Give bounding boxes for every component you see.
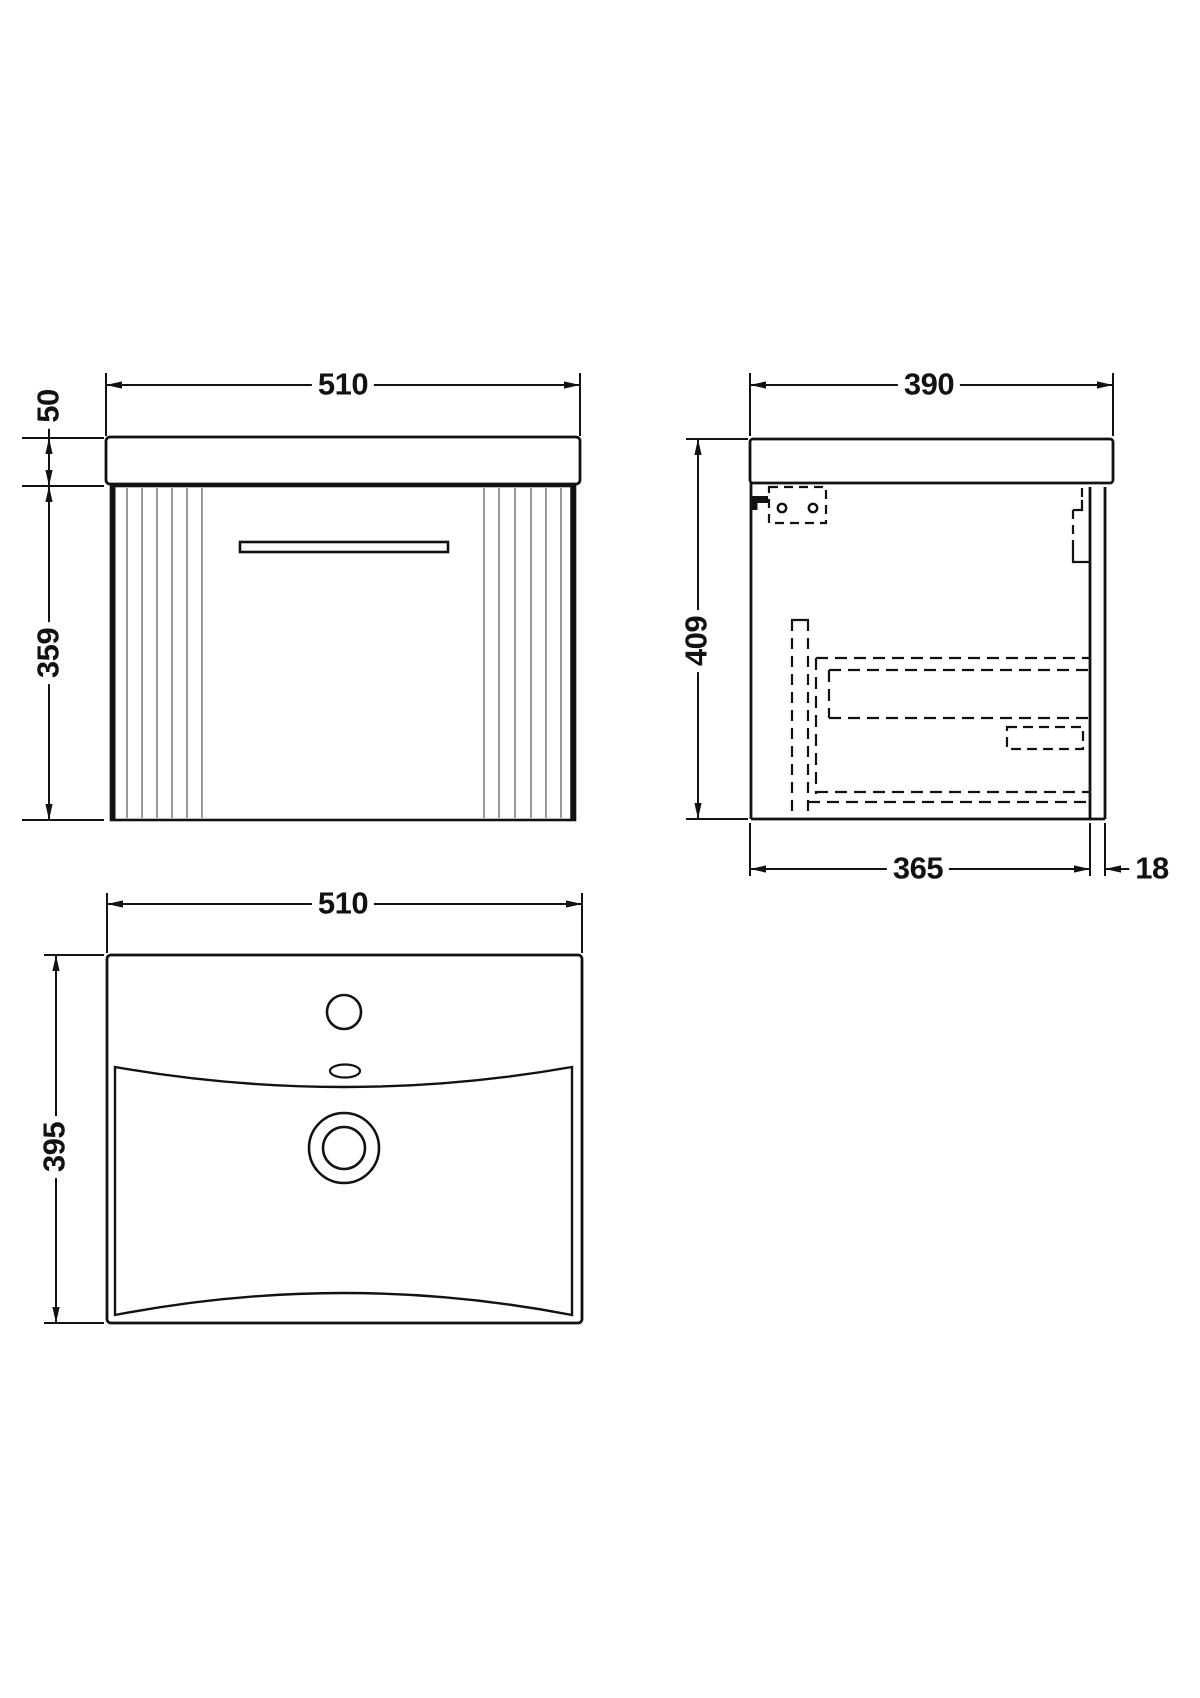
side-counter-outline (750, 439, 1113, 483)
dim-side-back-thickness: 18 (1129, 853, 1174, 886)
front-view (22, 373, 580, 820)
front-counter-outline (106, 437, 580, 484)
side-view (686, 373, 1130, 876)
plan-basin-outline (107, 955, 582, 1323)
technical-drawing-canvas: 510 50 359 390 409 365 18 510 395 (0, 0, 1200, 1698)
front-drawer-handle (240, 542, 448, 552)
dim-plan-width: 510 (312, 888, 374, 921)
side-drawer-channel (791, 620, 809, 818)
side-cabinet-outline (751, 483, 1105, 819)
front-cabinet-outline (111, 486, 575, 820)
dim-side-height: 409 (681, 610, 714, 672)
front-counter-height-dimension (22, 424, 104, 486)
dim-front-counter-height: 50 (33, 383, 66, 428)
side-drawer-hidden-lines (808, 658, 1089, 802)
side-rear-notch (1073, 488, 1089, 562)
plan-overflow-slot (330, 1065, 360, 1078)
dim-side-body-depth: 365 (887, 853, 949, 886)
dim-plan-depth: 395 (39, 1116, 72, 1178)
dim-front-cabinet-height: 359 (33, 622, 66, 684)
side-wall-bracket (751, 487, 826, 523)
plan-view (44, 893, 582, 1323)
drawing-linework (0, 0, 1200, 1698)
dim-front-width: 510 (312, 369, 374, 402)
dim-side-depth: 390 (898, 369, 960, 402)
side-bracket-hook (751, 496, 768, 510)
